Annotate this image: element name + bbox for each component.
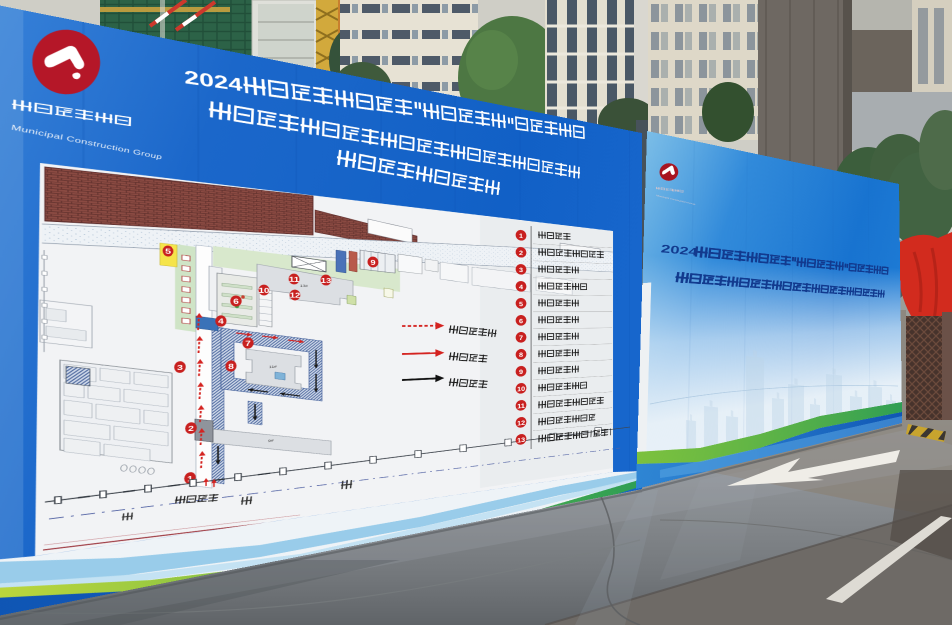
svg-text:13: 13: [321, 276, 332, 285]
svg-text:12: 12: [290, 291, 301, 299]
svg-text:1: 1: [519, 232, 523, 240]
svg-text:5: 5: [165, 248, 171, 256]
svg-text:13#: 13#: [300, 284, 308, 288]
svg-text:7: 7: [245, 339, 251, 348]
svg-text:7: 7: [519, 334, 523, 342]
svg-text:4: 4: [519, 283, 523, 291]
svg-text:3: 3: [519, 266, 523, 274]
svg-text:9: 9: [370, 258, 375, 266]
svg-text:6: 6: [519, 317, 523, 325]
svg-text:11: 11: [517, 402, 525, 410]
svg-text:12: 12: [517, 419, 525, 427]
svg-text:3: 3: [177, 364, 183, 372]
svg-text:6: 6: [233, 297, 239, 306]
svg-text:2: 2: [188, 425, 194, 433]
svg-text:2: 2: [519, 249, 523, 257]
svg-text:11: 11: [289, 275, 299, 283]
svg-text:8: 8: [519, 351, 523, 359]
svg-text:13: 13: [517, 435, 525, 444]
svg-text:11#: 11#: [269, 365, 277, 369]
svg-text:5: 5: [519, 300, 523, 308]
svg-text:4: 4: [218, 318, 224, 326]
svg-text:9#: 9#: [268, 438, 274, 443]
svg-text:10: 10: [258, 286, 269, 294]
svg-text:9: 9: [519, 368, 523, 376]
svg-text:8: 8: [228, 362, 234, 371]
svg-text:10: 10: [517, 385, 525, 393]
